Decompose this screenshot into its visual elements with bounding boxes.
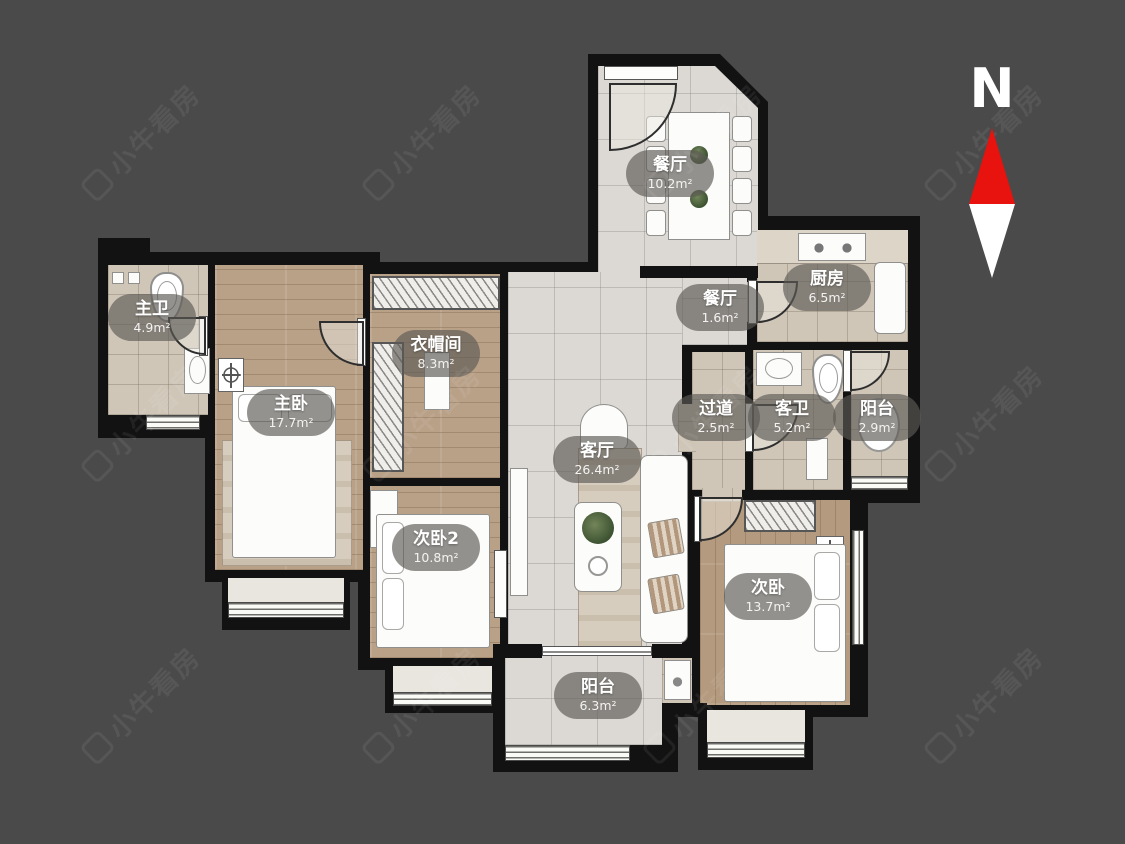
room-label-kitchen: 厨房 6.5m² (783, 264, 871, 311)
room-name: 次卧 (751, 579, 785, 599)
room-area: 26.4m² (574, 463, 619, 477)
compass-north-label: N (969, 62, 1014, 116)
room-name: 餐厅 (703, 290, 737, 310)
room-name: 次卧2 (413, 530, 459, 550)
room-area: 10.8m² (413, 551, 458, 565)
room-label-balcony-east: 阳台 2.9m² (833, 394, 921, 441)
room-area: 5.2m² (773, 421, 810, 435)
room-area: 4.9m² (133, 321, 170, 335)
compass-needle-south (969, 204, 1015, 278)
entry-door-arc (610, 84, 676, 150)
room-name: 客厅 (580, 442, 614, 462)
room-label-dining: 餐厅 10.2m² (626, 150, 714, 197)
room-label-master-bath: 主卫 4.9m² (108, 294, 196, 341)
room-name: 厨房 (810, 270, 844, 290)
room-label-cloakroom: 衣帽间 8.3m² (392, 330, 480, 377)
room-label-master-bedroom: 主卧 17.7m² (247, 389, 335, 436)
room-area: 13.7m² (745, 600, 790, 614)
room-area: 10.2m² (647, 177, 692, 191)
room-name: 餐厅 (653, 156, 687, 176)
room-area: 2.5m² (697, 421, 734, 435)
room-label-bedroom: 次卧 13.7m² (724, 573, 812, 620)
room-name: 主卧 (274, 395, 308, 415)
room-name: 客卫 (775, 400, 809, 420)
compass: N (956, 62, 1028, 292)
room-label-living: 客厅 26.4m² (553, 436, 641, 483)
room-area: 2.9m² (858, 421, 895, 435)
room-label-guest-bath: 客卫 5.2m² (748, 394, 836, 441)
room-area: 8.3m² (417, 357, 454, 371)
room-name: 阳台 (860, 400, 894, 420)
balcony-east-door-arc (851, 352, 889, 390)
room-area: 17.7m² (268, 416, 313, 430)
compass-needle-north (969, 128, 1015, 204)
cloakroom-door-arc (320, 322, 363, 365)
room-area: 1.6m² (701, 311, 738, 325)
floor-plan-canvas: 餐厅 10.2m² 餐厅 1.6m² 厨房 6.5m² 主卫 4.9m² 主卧 … (0, 0, 1125, 844)
room-name: 阳台 (581, 678, 615, 698)
room-area: 6.3m² (579, 699, 616, 713)
room-label-dining-nook: 餐厅 1.6m² (676, 284, 764, 331)
bedroom-door-arc (700, 498, 742, 540)
room-name: 主卫 (135, 300, 169, 320)
room-area: 6.5m² (808, 291, 845, 305)
room-label-balcony-south: 阳台 6.3m² (554, 672, 642, 719)
room-label-hallway: 过道 2.5m² (672, 394, 760, 441)
room-name: 过道 (699, 400, 733, 420)
room-label-bedroom-2: 次卧2 10.8m² (392, 524, 480, 571)
room-name: 衣帽间 (411, 336, 462, 356)
